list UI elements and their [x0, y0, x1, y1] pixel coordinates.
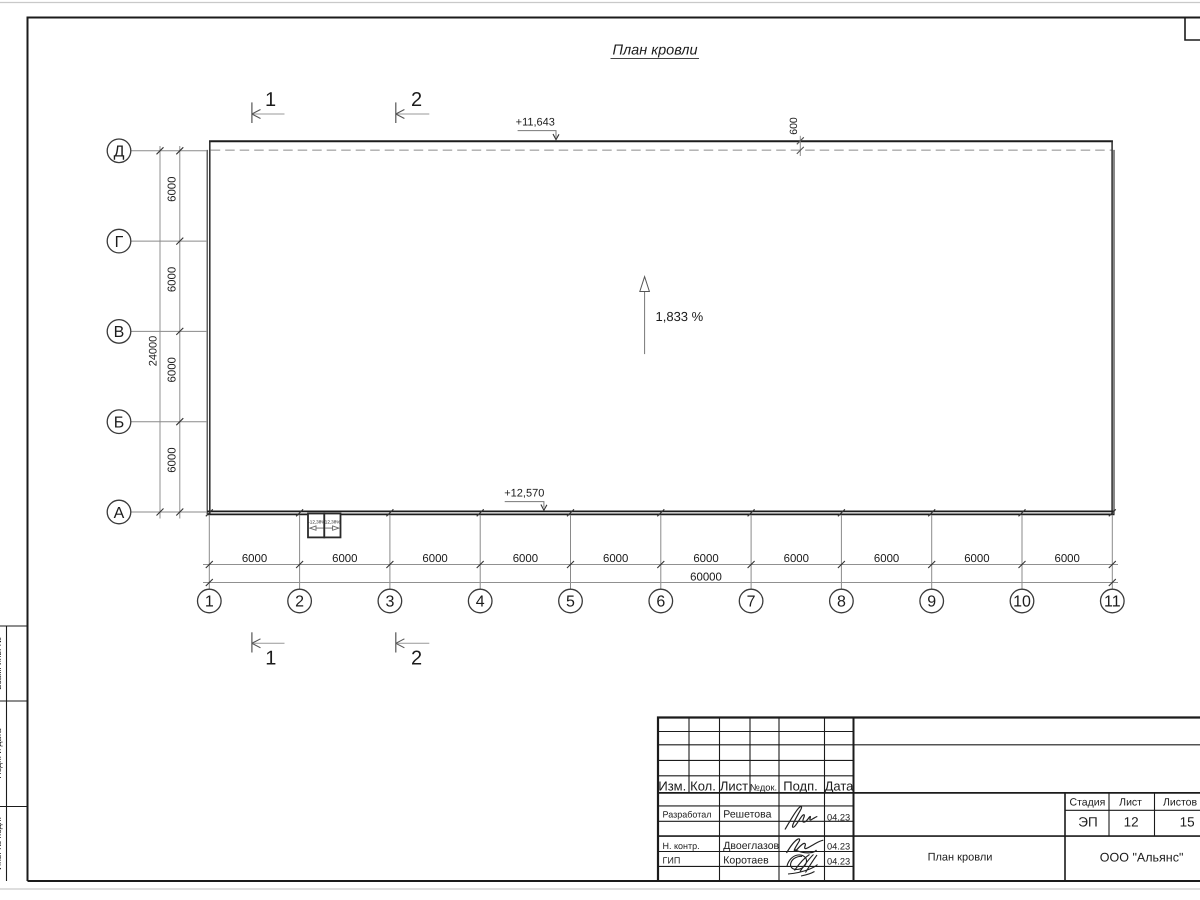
- svg-text:6000: 6000: [242, 553, 267, 565]
- svg-text:7: 7: [747, 594, 756, 611]
- svg-text:9: 9: [927, 594, 936, 611]
- svg-text:1,833 %: 1,833 %: [656, 309, 704, 324]
- svg-text:А: А: [114, 505, 125, 522]
- svg-text:6000: 6000: [513, 553, 538, 565]
- svg-text:Инв. № подл.: Инв. № подл.: [0, 817, 3, 870]
- svg-text:+12,570: +12,570: [504, 487, 544, 499]
- svg-text:Б: Б: [114, 415, 125, 432]
- svg-text:6000: 6000: [603, 553, 628, 565]
- svg-text:Г: Г: [115, 234, 124, 251]
- svg-text:Решетова: Решетова: [723, 808, 771, 820]
- svg-text:План кровли: План кровли: [612, 43, 697, 59]
- svg-text:12: 12: [1124, 815, 1139, 830]
- svg-text:Лист: Лист: [720, 779, 748, 794]
- svg-text:10: 10: [1013, 594, 1031, 611]
- svg-text:6000: 6000: [332, 553, 357, 565]
- svg-text:Подп.: Подп.: [783, 779, 818, 794]
- svg-text:2: 2: [411, 648, 422, 670]
- svg-text:Листов: Листов: [1163, 797, 1198, 809]
- svg-text:Лист: Лист: [1119, 797, 1142, 809]
- svg-text:1: 1: [205, 594, 214, 611]
- svg-text:4: 4: [476, 594, 485, 611]
- svg-text:2: 2: [295, 594, 304, 611]
- svg-text:Изм.: Изм.: [658, 779, 686, 794]
- svg-text:6000: 6000: [874, 553, 899, 565]
- svg-text:ООО "Альянс": ООО "Альянс": [1100, 851, 1184, 865]
- svg-text:60000: 60000: [690, 571, 722, 583]
- svg-text:600: 600: [788, 117, 800, 135]
- svg-text:Разработал: Разработал: [663, 809, 712, 819]
- svg-text:6000: 6000: [167, 267, 179, 292]
- svg-text:5: 5: [566, 594, 575, 611]
- svg-text:15: 15: [1180, 815, 1195, 830]
- svg-text:2: 2: [411, 89, 422, 111]
- svg-text:6000: 6000: [167, 177, 179, 202]
- svg-text:Дата: Дата: [825, 779, 855, 794]
- svg-text:Д: Д: [114, 144, 125, 161]
- svg-text:-12,38%: -12,38%: [323, 519, 340, 524]
- svg-text:6000: 6000: [784, 553, 809, 565]
- svg-text:Подп. и дата: Подп. и дата: [0, 728, 3, 778]
- svg-text:6000: 6000: [1055, 553, 1080, 565]
- svg-text:Коротаев: Коротаев: [723, 854, 769, 866]
- svg-text:8: 8: [837, 594, 846, 611]
- svg-text:В: В: [114, 324, 125, 341]
- svg-text:04.23: 04.23: [827, 857, 850, 867]
- svg-text:Кол.: Кол.: [690, 779, 716, 794]
- svg-text:Стадия: Стадия: [1070, 797, 1106, 809]
- svg-text:6000: 6000: [167, 447, 179, 472]
- svg-text:ГИП: ГИП: [663, 855, 681, 865]
- svg-text:6000: 6000: [693, 553, 718, 565]
- svg-text:04.23: 04.23: [827, 813, 850, 823]
- svg-text:04.23: 04.23: [827, 841, 850, 851]
- svg-text:№док.: №док.: [750, 783, 777, 793]
- svg-text:6000: 6000: [167, 357, 179, 382]
- svg-text:План кровли: План кровли: [928, 852, 993, 864]
- svg-text:3: 3: [385, 594, 394, 611]
- svg-text:6000: 6000: [422, 553, 447, 565]
- svg-text:11: 11: [1104, 594, 1121, 611]
- svg-text:1: 1: [265, 89, 276, 111]
- svg-text:Двоеглазов: Двоеглазов: [723, 840, 779, 852]
- svg-text:Взам. инв. №: Взам. инв. №: [0, 637, 3, 690]
- svg-text:ЭП: ЭП: [1078, 815, 1097, 830]
- svg-text:6: 6: [656, 594, 665, 611]
- svg-text:+11,643: +11,643: [516, 117, 555, 129]
- svg-text:1: 1: [265, 648, 276, 670]
- svg-text:6000: 6000: [964, 553, 989, 565]
- svg-text:Н. контр.: Н. контр.: [663, 841, 700, 851]
- svg-text:24000: 24000: [147, 336, 159, 367]
